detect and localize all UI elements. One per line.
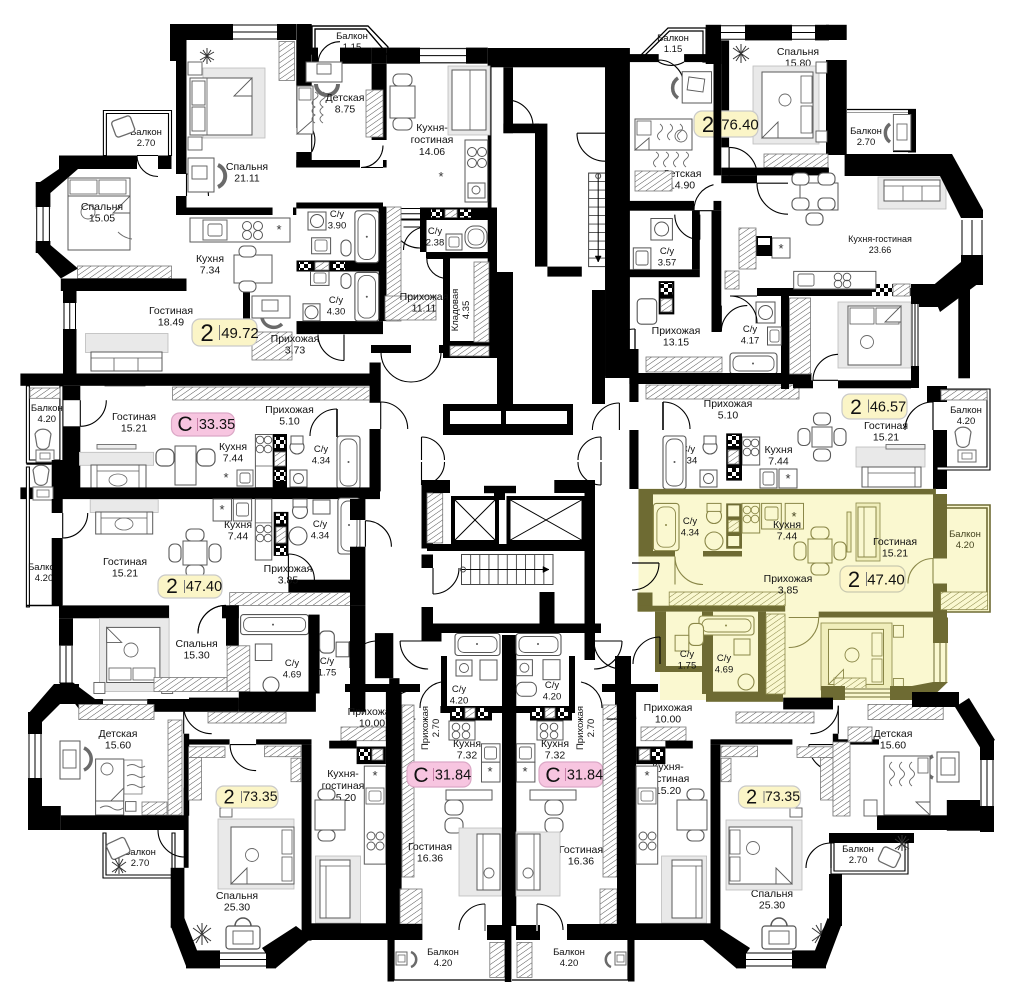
svg-text:*: * bbox=[785, 471, 790, 486]
svg-text:Гостиная: Гостиная bbox=[103, 556, 147, 568]
svg-text:4.69: 4.69 bbox=[715, 665, 734, 676]
svg-text:4.20: 4.20 bbox=[957, 416, 976, 427]
svg-text:47.40: 47.40 bbox=[186, 579, 222, 595]
svg-text:Балкон: Балкон bbox=[949, 529, 981, 540]
svg-text:2: 2 bbox=[200, 320, 213, 347]
svg-text:С/у: С/у bbox=[545, 680, 560, 691]
svg-text:2: 2 bbox=[746, 787, 757, 809]
svg-text:Спальня: Спальня bbox=[81, 201, 123, 213]
svg-text:4.17: 4.17 bbox=[741, 336, 760, 347]
svg-text:*: * bbox=[223, 470, 228, 485]
svg-text:С/у: С/у bbox=[320, 656, 335, 667]
svg-text:С/у: С/у bbox=[660, 246, 675, 257]
svg-text:Детская: Детская bbox=[99, 728, 138, 740]
svg-text:Гостиная: Гостиная bbox=[112, 411, 156, 423]
svg-text:*: * bbox=[438, 169, 443, 184]
svg-text:Гостиная: Гостиная bbox=[864, 420, 908, 432]
svg-text:25.30: 25.30 bbox=[759, 900, 785, 912]
svg-text:Детская: Детская bbox=[326, 92, 365, 104]
svg-text:76.40: 76.40 bbox=[721, 117, 759, 134]
svg-text:гостиная: гостиная bbox=[411, 134, 454, 146]
svg-text:С/у: С/у bbox=[680, 649, 695, 660]
svg-text:1.75: 1.75 bbox=[678, 661, 697, 672]
svg-text:14.90: 14.90 bbox=[669, 180, 695, 192]
svg-text:4.20: 4.20 bbox=[38, 414, 57, 425]
svg-text:7.32: 7.32 bbox=[545, 750, 566, 762]
svg-text:47.40: 47.40 bbox=[867, 572, 905, 589]
svg-text:*: * bbox=[522, 764, 527, 779]
svg-text:Балкон: Балкон bbox=[336, 31, 368, 42]
svg-text:4.34: 4.34 bbox=[312, 456, 331, 467]
svg-text:23.66: 23.66 bbox=[869, 245, 892, 255]
svg-text:Кухня: Кухня bbox=[196, 253, 224, 265]
svg-text:15.21: 15.21 bbox=[882, 548, 908, 560]
svg-text:1.75: 1.75 bbox=[318, 668, 337, 679]
svg-text:Прихожая: Прихожая bbox=[652, 325, 701, 337]
svg-text:4.34: 4.34 bbox=[681, 528, 700, 539]
svg-text:Гостиная: Гостиная bbox=[149, 305, 193, 317]
svg-text:3.73: 3.73 bbox=[285, 345, 306, 357]
svg-text:3.90: 3.90 bbox=[328, 221, 347, 232]
svg-text:Гостиная: Гостиная bbox=[408, 841, 452, 853]
svg-text:Балкон: Балкон bbox=[427, 947, 459, 958]
svg-text:С: С bbox=[177, 413, 192, 436]
svg-text:4.20: 4.20 bbox=[450, 696, 469, 707]
svg-text:25.30: 25.30 bbox=[224, 902, 250, 914]
svg-text:*: * bbox=[487, 764, 492, 779]
svg-text:16.36: 16.36 bbox=[568, 856, 594, 868]
svg-text:2.70: 2.70 bbox=[857, 137, 876, 148]
svg-text:16.36: 16.36 bbox=[417, 853, 443, 865]
svg-text:15.21: 15.21 bbox=[873, 432, 899, 444]
svg-text:2: 2 bbox=[848, 567, 860, 592]
svg-text:С/у: С/у bbox=[330, 209, 345, 220]
svg-text:Балкон: Балкон bbox=[842, 844, 874, 855]
svg-text:15.21: 15.21 bbox=[112, 568, 138, 580]
svg-text:3.85: 3.85 bbox=[278, 575, 299, 587]
svg-text:4.69: 4.69 bbox=[283, 670, 302, 681]
svg-text:15.21: 15.21 bbox=[121, 423, 147, 435]
svg-text:Спальня: Спальня bbox=[216, 890, 258, 902]
svg-text:*: * bbox=[372, 768, 377, 783]
svg-text:7.44: 7.44 bbox=[228, 531, 249, 543]
svg-text:2.70: 2.70 bbox=[849, 855, 868, 866]
svg-text:С/у: С/у bbox=[452, 684, 467, 695]
svg-text:4.35: 4.35 bbox=[461, 301, 472, 320]
svg-text:2: 2 bbox=[166, 575, 178, 598]
svg-text:2.70: 2.70 bbox=[137, 138, 156, 149]
svg-text:7.44: 7.44 bbox=[768, 456, 789, 468]
svg-text:Прихожая: Прихожая bbox=[400, 291, 449, 303]
svg-text:7.44: 7.44 bbox=[223, 453, 244, 465]
svg-text:*: * bbox=[644, 768, 649, 783]
svg-text:2: 2 bbox=[850, 396, 862, 419]
svg-text:2.38: 2.38 bbox=[426, 238, 445, 249]
svg-text:46.57: 46.57 bbox=[870, 400, 906, 416]
svg-text:Спальня: Спальня bbox=[777, 46, 819, 58]
svg-text:Балкон: Балкон bbox=[657, 33, 689, 44]
svg-text:С/у: С/у bbox=[683, 516, 698, 527]
svg-text:*: * bbox=[219, 502, 224, 517]
svg-text:31.84: 31.84 bbox=[435, 768, 471, 784]
svg-text:8.75: 8.75 bbox=[335, 104, 356, 116]
svg-text:2.70: 2.70 bbox=[431, 719, 442, 738]
svg-text:Кухня-: Кухня- bbox=[327, 768, 359, 780]
svg-text:4.20: 4.20 bbox=[560, 958, 579, 969]
svg-text:13.15: 13.15 bbox=[663, 337, 689, 349]
svg-text:4.20: 4.20 bbox=[956, 540, 975, 551]
svg-text:Кухня: Кухня bbox=[773, 519, 801, 531]
svg-text:4.20: 4.20 bbox=[35, 573, 54, 584]
svg-text:Прихожая: Прихожая bbox=[575, 706, 586, 750]
svg-text:Гостиная: Гостиная bbox=[559, 844, 603, 856]
svg-text:*: * bbox=[276, 222, 281, 237]
svg-text:18.49: 18.49 bbox=[158, 317, 184, 329]
svg-text:Кухня-: Кухня- bbox=[416, 122, 448, 134]
svg-text:Спальня: Спальня bbox=[175, 638, 217, 650]
svg-text:33.35: 33.35 bbox=[199, 417, 235, 433]
svg-text:Кухня: Кухня bbox=[219, 441, 247, 453]
svg-text:Спальня: Спальня bbox=[226, 161, 268, 173]
svg-text:Детская: Детская bbox=[874, 728, 913, 740]
svg-text:4.20: 4.20 bbox=[434, 958, 453, 969]
svg-text:2: 2 bbox=[223, 787, 234, 809]
svg-text:С/у: С/у bbox=[717, 653, 732, 664]
svg-text:10.00: 10.00 bbox=[655, 714, 681, 726]
svg-text:73.35: 73.35 bbox=[765, 788, 800, 804]
svg-text:15.60: 15.60 bbox=[105, 740, 131, 752]
svg-text:Кухня: Кухня bbox=[764, 444, 792, 456]
svg-text:С/у: С/у bbox=[428, 226, 443, 237]
svg-text:21.11: 21.11 bbox=[234, 173, 260, 185]
svg-text:С/у: С/у bbox=[743, 324, 758, 335]
svg-text:Кладовая: Кладовая bbox=[450, 289, 461, 332]
svg-text:Балкон: Балкон bbox=[553, 947, 585, 958]
svg-text:7.34: 7.34 bbox=[200, 265, 221, 277]
svg-text:11.11: 11.11 bbox=[412, 303, 437, 315]
svg-text:Прихожая: Прихожая bbox=[420, 706, 431, 750]
svg-text:2: 2 bbox=[702, 112, 714, 137]
svg-text:5.10: 5.10 bbox=[718, 410, 739, 422]
svg-text:2.70: 2.70 bbox=[586, 719, 597, 738]
svg-text:Прихожая: Прихожая bbox=[764, 573, 813, 585]
svg-text:Балкон: Балкон bbox=[850, 126, 882, 137]
svg-text:15.05: 15.05 bbox=[89, 213, 115, 225]
svg-text:2.70: 2.70 bbox=[131, 858, 150, 869]
svg-text:С/у: С/у bbox=[313, 519, 328, 530]
svg-text:Балкон: Балкон bbox=[950, 405, 982, 416]
svg-text:4.34: 4.34 bbox=[311, 531, 330, 542]
svg-text:15.60: 15.60 bbox=[880, 740, 906, 752]
svg-text:С/у: С/у bbox=[285, 658, 300, 669]
svg-text:Балкон: Балкон bbox=[31, 403, 63, 414]
svg-text:3.85: 3.85 bbox=[778, 585, 799, 597]
svg-text:7.44: 7.44 bbox=[777, 531, 798, 543]
svg-text:С: С bbox=[413, 764, 428, 787]
svg-text:Кухня: Кухня bbox=[453, 738, 481, 750]
svg-text:Прихожая: Прихожая bbox=[271, 333, 320, 345]
svg-text:Прихожая: Прихожая bbox=[644, 702, 693, 714]
svg-text:С: С bbox=[545, 764, 560, 787]
svg-text:7.32: 7.32 bbox=[457, 750, 478, 762]
svg-text:49.72: 49.72 bbox=[221, 325, 259, 342]
svg-text:31.84: 31.84 bbox=[567, 768, 603, 784]
svg-text:14.06: 14.06 bbox=[419, 146, 445, 158]
svg-text:*: * bbox=[778, 241, 783, 256]
svg-text:С/у: С/у bbox=[329, 295, 344, 306]
svg-text:15.30: 15.30 bbox=[183, 650, 209, 662]
svg-text:С/у: С/у bbox=[314, 444, 329, 455]
svg-text:Кухня-гостиная: Кухня-гостиная bbox=[848, 234, 912, 244]
svg-text:5.10: 5.10 bbox=[279, 416, 300, 428]
svg-text:1.15: 1.15 bbox=[664, 44, 683, 55]
svg-text:Прихожая: Прихожая bbox=[264, 563, 313, 575]
svg-text:4.30: 4.30 bbox=[327, 307, 346, 318]
svg-text:3.57: 3.57 bbox=[658, 258, 677, 269]
svg-text:Прихожая: Прихожая bbox=[265, 404, 314, 416]
svg-text:15.20: 15.20 bbox=[655, 785, 681, 797]
svg-text:4.20: 4.20 bbox=[543, 692, 562, 703]
svg-text:Кухня: Кухня bbox=[541, 738, 569, 750]
svg-text:73.35: 73.35 bbox=[242, 788, 277, 804]
svg-text:Прихожая: Прихожая bbox=[704, 398, 753, 410]
svg-text:Гостиная: Гостиная bbox=[873, 536, 917, 548]
